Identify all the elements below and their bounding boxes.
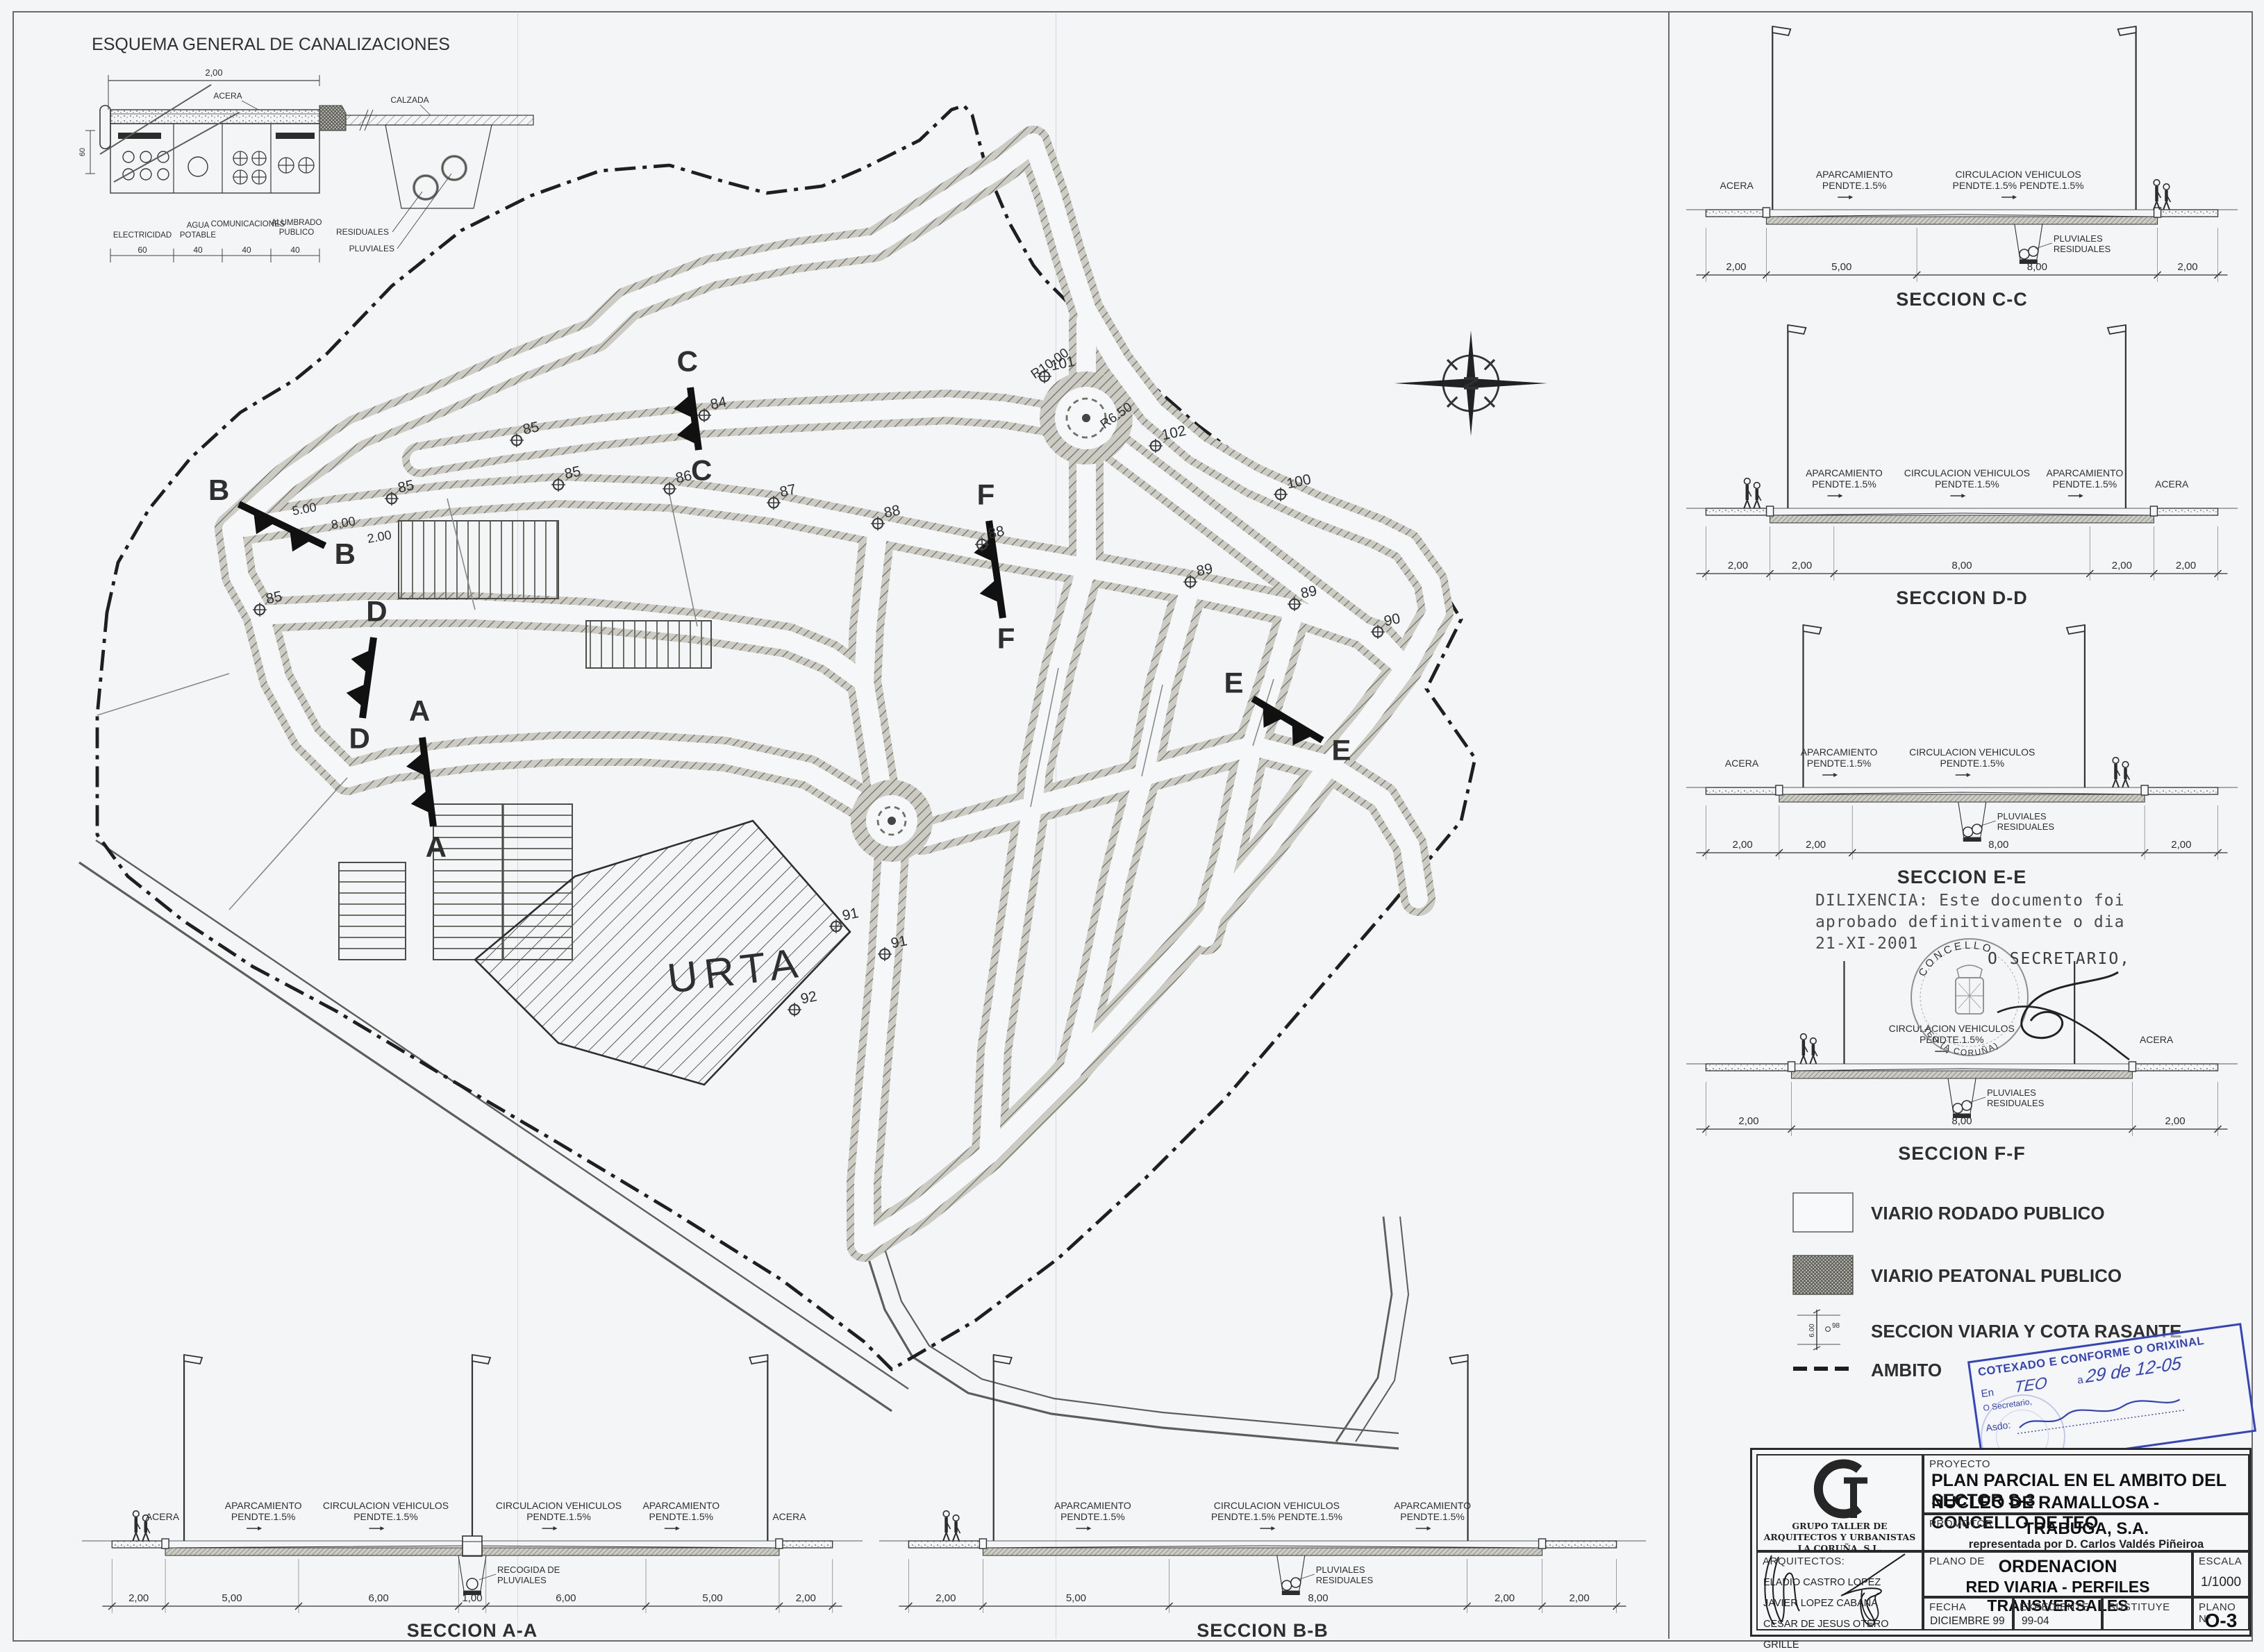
legend-label: AMBITO (1871, 1360, 1942, 1380)
svg-text:PLUVIALES: PLUVIALES (1997, 811, 2047, 821)
firm-logo-icon (1801, 1457, 1877, 1521)
svg-text:CIRCULACION VEHICULOS: CIRCULACION VEHICULOS (1909, 746, 2035, 758)
svg-text:84: 84 (709, 394, 729, 412)
plano-title-1: ORDENACION (1924, 1557, 2191, 1577)
svg-text:B: B (335, 537, 356, 570)
legend-item: AMBITO (1793, 1360, 1942, 1380)
site-plan: BBCCDDAAFFEE8585868788888989901011021009… (63, 21, 1660, 1468)
svg-text:2,00: 2,00 (1733, 839, 1753, 851)
svg-text:5,00: 5,00 (702, 1592, 722, 1604)
svg-text:8,00: 8,00 (1988, 839, 2008, 851)
svg-text:PENDTE.1.5%: PENDTE.1.5% (353, 1511, 418, 1522)
svg-text:85: 85 (563, 463, 583, 482)
fecha-value: DICIEMBRE 99 (1930, 1615, 2005, 1628)
svg-text:85: 85 (397, 477, 416, 496)
dilixencia-line1: DILIXENCIA: Este documento foi (1815, 890, 2204, 912)
svg-text:2,00: 2,00 (1792, 560, 1812, 571)
architects-cell: ARQUITECTOS: ELADIO CASTRO LOPEZ JAVIER … (1756, 1551, 1923, 1630)
svg-text:APARCAMIENTO: APARCAMIENTO (2047, 467, 2124, 478)
svg-text:APARCAMIENTO: APARCAMIENTO (1394, 1500, 1471, 1511)
svg-text:PENDTE.1.5%: PENDTE.1.5% (1400, 1511, 1465, 1522)
svg-text:CIRCULACION VEHICULOS: CIRCULACION VEHICULOS (1214, 1500, 1340, 1511)
panel-divider (1668, 11, 1670, 1639)
section-title: SECCION B-B (1197, 1620, 1329, 1641)
fecha-cell: FECHA DICIEMBRE 99 (1923, 1597, 2013, 1630)
svg-text:RESIDUALES: RESIDUALES (1316, 1575, 1374, 1585)
svg-text:85: 85 (265, 588, 284, 607)
svg-text:APARCAMIENTO: APARCAMIENTO (1054, 1500, 1131, 1511)
sustituye-cell: SUSTITUYE (2102, 1597, 2192, 1630)
svg-text:ACERA: ACERA (146, 1511, 180, 1522)
svg-text:ACERA: ACERA (1720, 180, 1754, 191)
svg-text:2,00: 2,00 (128, 1592, 149, 1604)
expediente-value: 99-04 (2022, 1615, 2049, 1628)
legend-label: VIARIO PEATONAL PUBLICO (1871, 1265, 2122, 1286)
svg-text:2,00: 2,00 (796, 1592, 816, 1604)
svg-text:A: A (409, 694, 430, 727)
svg-text:91: 91 (890, 933, 909, 951)
svg-text:D: D (366, 594, 387, 627)
svg-text:2,00: 2,00 (2176, 560, 2196, 571)
svg-text:PENDTE.1.5%: PENDTE.1.5% (1935, 478, 1999, 490)
svg-text:91: 91 (841, 905, 860, 924)
section-aa: RECOGIDA DEPLUVIALESACERAAPARCAMIENTOPEN… (76, 1344, 868, 1645)
expediente-cell: EXPEDIENTE 99-04 (2013, 1597, 2102, 1630)
svg-text:2,00: 2,00 (2177, 261, 2197, 273)
svg-text:2.00: 2.00 (366, 528, 392, 546)
svg-text:2,00: 2,00 (2112, 560, 2132, 571)
svg-text:85: 85 (522, 419, 541, 437)
svg-text:PENDTE.1.5% PENDTE.1.5%: PENDTE.1.5% PENDTE.1.5% (1211, 1511, 1342, 1522)
svg-text:CIRCULACION VEHICULOS: CIRCULACION VEHICULOS (323, 1500, 449, 1511)
svg-text:PENDTE.1.5%: PENDTE.1.5% (1812, 478, 1876, 490)
svg-text:2,00: 2,00 (2165, 1115, 2185, 1127)
svg-text:A: A (426, 831, 447, 863)
svg-text:5,00: 5,00 (1831, 261, 1851, 273)
svg-text:CIRCULACION VEHICULOS: CIRCULACION VEHICULOS (1955, 169, 2081, 180)
svg-text:APARCAMIENTO: APARCAMIENTO (1816, 169, 1893, 180)
plano-n-cell: PLANO Nº O-3 (2192, 1597, 2249, 1630)
svg-text:89: 89 (1299, 583, 1319, 601)
svg-text:88: 88 (883, 502, 902, 521)
svg-text:C: C (691, 454, 712, 487)
svg-text:ACERA: ACERA (1725, 758, 1759, 769)
svg-text:8,00: 8,00 (2027, 261, 2047, 273)
svg-text:2,00: 2,00 (1806, 839, 1826, 851)
legend-item: VIARIO PEATONAL PUBLICO (1793, 1255, 2122, 1294)
secretario-signature (1993, 958, 2146, 1076)
svg-text:CONCELLO: CONCELLO (1916, 940, 1995, 978)
svg-text:TEO (A CORUÑA): TEO (A CORUÑA) (1922, 1024, 2001, 1058)
compass-icon: N (1395, 331, 1547, 436)
svg-text:5,00: 5,00 (222, 1592, 242, 1604)
svg-text:RESIDUALES: RESIDUALES (1997, 821, 2055, 832)
svg-text:PENDTE.1.5%: PENDTE.1.5% (1807, 758, 1872, 769)
svg-text:PLUVIALES: PLUVIALES (1987, 1087, 2036, 1098)
svg-text:2,00: 2,00 (935, 1592, 956, 1604)
svg-text:ACERA: ACERA (772, 1511, 806, 1522)
promotor-rep: representada por D. Carlos Valdés Piñeir… (1924, 1538, 2248, 1551)
svg-text:PENDTE.1.5%: PENDTE.1.5% (1940, 758, 2004, 769)
svg-text:E: E (1224, 667, 1244, 699)
section-title: SECCION E-E (1897, 867, 2027, 887)
svg-text:6,00: 6,00 (556, 1592, 576, 1604)
svg-text:87: 87 (779, 481, 798, 500)
svg-text:D: D (349, 722, 369, 755)
promotor-cell: PROMOTOR TRABUGA, S.A. representada por … (1923, 1514, 2249, 1551)
svg-text:2,00: 2,00 (2171, 839, 2191, 851)
svg-text:2,00: 2,00 (1738, 1115, 1758, 1127)
title-block: GRUPO TALLER DE ARQUITECTOS Y URBANISTAS… (1750, 1448, 2251, 1637)
svg-text:PENDTE.1.5%: PENDTE.1.5% (649, 1511, 714, 1522)
svg-text:PENDTE.1.5%: PENDTE.1.5% (1822, 180, 1887, 191)
svg-text:8,00: 8,00 (1951, 1115, 1972, 1127)
section-cc: PLUVIALESRESIDUALESACERAAPARCAMIENTOPEND… (1681, 15, 2243, 314)
svg-text:E: E (1331, 733, 1351, 766)
svg-text:RECOGIDA DE: RECOGIDA DE (497, 1565, 560, 1575)
svg-text:92: 92 (799, 988, 819, 1007)
svg-text:8,00: 8,00 (1308, 1592, 1328, 1604)
svg-text:C: C (677, 344, 698, 377)
drawing-sheet: ESQUEMA GENERAL DE CANALIZACIONES 2,00 A… (0, 0, 2264, 1652)
plano-n-value: O-3 (2194, 1610, 2248, 1632)
promotor-name: TRABUGA, S.A. (1924, 1519, 2248, 1539)
svg-text:8,00: 8,00 (1951, 560, 1972, 571)
svg-text:89: 89 (1195, 560, 1215, 579)
svg-text:98: 98 (1832, 1322, 1840, 1330)
svg-text:N: N (1459, 376, 1482, 391)
plano-cell: PLANO DE ORDENACION RED VIARIA - PERFILE… (1923, 1551, 2192, 1597)
svg-text:PENDTE.1.5% PENDTE.1.5%: PENDTE.1.5% PENDTE.1.5% (1953, 180, 2084, 191)
svg-text:2,00: 2,00 (1728, 560, 1748, 571)
svg-text:ACERA: ACERA (2155, 478, 2189, 490)
svg-text:APARCAMIENTO: APARCAMIENTO (642, 1500, 719, 1511)
svg-text:F: F (997, 622, 1015, 655)
svg-text:2,00: 2,00 (1495, 1592, 1515, 1604)
svg-text:90: 90 (1383, 610, 1402, 629)
svg-text:2,00: 2,00 (1569, 1592, 1589, 1604)
svg-text:PLUVIALES: PLUVIALES (497, 1575, 547, 1585)
svg-text:5,00: 5,00 (1066, 1592, 1086, 1604)
section-bb: PLUVIALESRESIDUALESAPARCAMIENTOPENDTE.1.… (874, 1344, 1651, 1645)
svg-text:RESIDUALES: RESIDUALES (2054, 244, 2111, 254)
svg-text:APARCAMIENTO: APARCAMIENTO (225, 1500, 302, 1511)
svg-text:PLUVIALES: PLUVIALES (1316, 1565, 1365, 1575)
section-ee: PLUVIALESRESIDUALESACERAAPARCAMIENTOPEND… (1681, 614, 2243, 892)
escala-value: 1/1000 (2194, 1575, 2248, 1590)
escala-cell: ESCALA 1/1000 (2192, 1551, 2249, 1597)
svg-text:6.00: 6.00 (1808, 1324, 1816, 1337)
svg-text:F: F (977, 478, 995, 510)
firm-name: GRUPO TALLER DE ARQUITECTOS Y URBANISTAS (1758, 1521, 1922, 1543)
svg-text:PENDTE.1.5%: PENDTE.1.5% (2053, 478, 2117, 490)
svg-text:CIRCULACION VEHICULOS: CIRCULACION VEHICULOS (1904, 467, 2030, 478)
firm-cell: GRUPO TALLER DE ARQUITECTOS Y URBANISTAS… (1756, 1454, 1923, 1551)
svg-text:PENDTE.1.5%: PENDTE.1.5% (526, 1511, 591, 1522)
architect-signatures (1758, 1553, 1922, 1629)
proyecto-cell: PROYECTO PLAN PARCIAL EN EL AMBITO DEL S… (1923, 1454, 2249, 1514)
stamp-lugar: TEO (2013, 1374, 2047, 1397)
svg-text:APARCAMIENTO: APARCAMIENTO (1801, 746, 1878, 758)
svg-text:2,00: 2,00 (1726, 261, 1746, 273)
svg-text:CIRCULACION VEHICULOS: CIRCULACION VEHICULOS (496, 1500, 622, 1511)
legend-label: VIARIO RODADO PUBLICO (1871, 1203, 2105, 1224)
svg-text:88: 88 (987, 523, 1006, 542)
svg-text:APARCAMIENTO: APARCAMIENTO (1806, 467, 1883, 478)
section-title: SECCION A-A (407, 1620, 538, 1641)
legend-item: VIARIO RODADO PUBLICO (1793, 1193, 2105, 1232)
section-dd: APARCAMIENTOPENDTE.1.5%CIRCULACION VEHIC… (1681, 314, 2243, 612)
section-title: SECCION F-F (1898, 1143, 2026, 1164)
svg-text:6,00: 6,00 (369, 1592, 389, 1604)
svg-text:1,00: 1,00 (462, 1592, 482, 1604)
svg-text:PLUVIALES: PLUVIALES (2054, 233, 2103, 244)
section-title: SECCION D-D (1896, 587, 2028, 608)
svg-text:PENDTE.1.5%: PENDTE.1.5% (231, 1511, 296, 1522)
svg-text:B: B (208, 474, 229, 506)
section-title: SECCION C-C (1896, 289, 2028, 310)
svg-text:86: 86 (674, 467, 694, 486)
svg-text:PENDTE.1.5%: PENDTE.1.5% (1060, 1511, 1125, 1522)
svg-text:RESIDUALES: RESIDUALES (1987, 1098, 2045, 1108)
